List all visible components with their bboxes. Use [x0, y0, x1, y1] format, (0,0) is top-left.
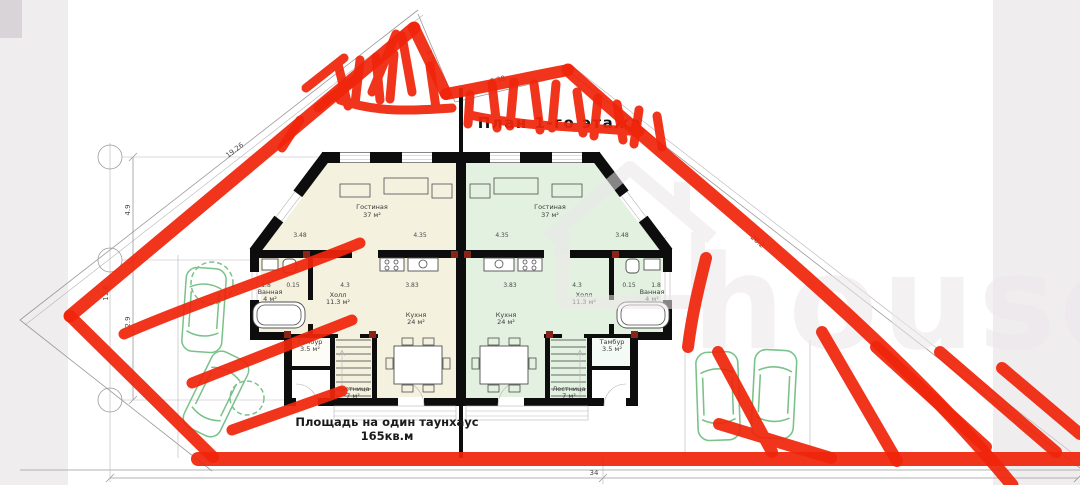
- party-wall: [456, 152, 466, 406]
- dim-label: 4.35: [495, 232, 509, 239]
- room-area: 3.5 м²: [602, 345, 622, 353]
- area-note-line2: 165кв.м: [361, 429, 414, 443]
- dim-label: 4.9: [124, 204, 132, 215]
- dim-label: 0.15: [622, 282, 636, 289]
- dim-label: 3.83: [405, 282, 419, 289]
- dim-label: 1.8: [651, 282, 661, 289]
- blueprint-photo: План 1-го этажа Гостиная 37 м² Гостиная …: [0, 0, 1080, 485]
- room-area: 7 м²: [346, 392, 360, 400]
- area-note-line1: Площадь на один таунхаус: [295, 415, 478, 429]
- room-area: 11.3 м²: [326, 298, 350, 306]
- corner-smudge: [0, 0, 22, 38]
- room-label: Гостиная: [356, 203, 388, 211]
- room-area: 24 м²: [497, 318, 515, 326]
- right-store-floor: [590, 368, 634, 400]
- room-label: Гостиная: [534, 203, 566, 211]
- dim-label: 3.83: [503, 282, 517, 289]
- floor-plan-svg: План 1-го этажа Гостиная 37 м² Гостиная …: [0, 0, 1080, 485]
- dim-label: 34: [590, 469, 599, 477]
- room-area: 7 м²: [562, 392, 576, 400]
- dim-label: 4.3: [572, 282, 582, 289]
- room-area: 3.5 м²: [300, 345, 320, 353]
- left-edge-strip: [0, 0, 68, 485]
- room-area: 37 м²: [541, 211, 559, 219]
- room-area: 37 м²: [363, 211, 381, 219]
- room-area: 24 м²: [407, 318, 425, 326]
- dim-label: 0.15: [286, 282, 300, 289]
- dim-label: 4.35: [413, 232, 427, 239]
- dim-label: 3.48: [293, 232, 307, 239]
- dim-label: 4.3: [340, 282, 350, 289]
- dim-label: 3.48: [615, 232, 629, 239]
- room-area: 4 м²: [263, 295, 277, 303]
